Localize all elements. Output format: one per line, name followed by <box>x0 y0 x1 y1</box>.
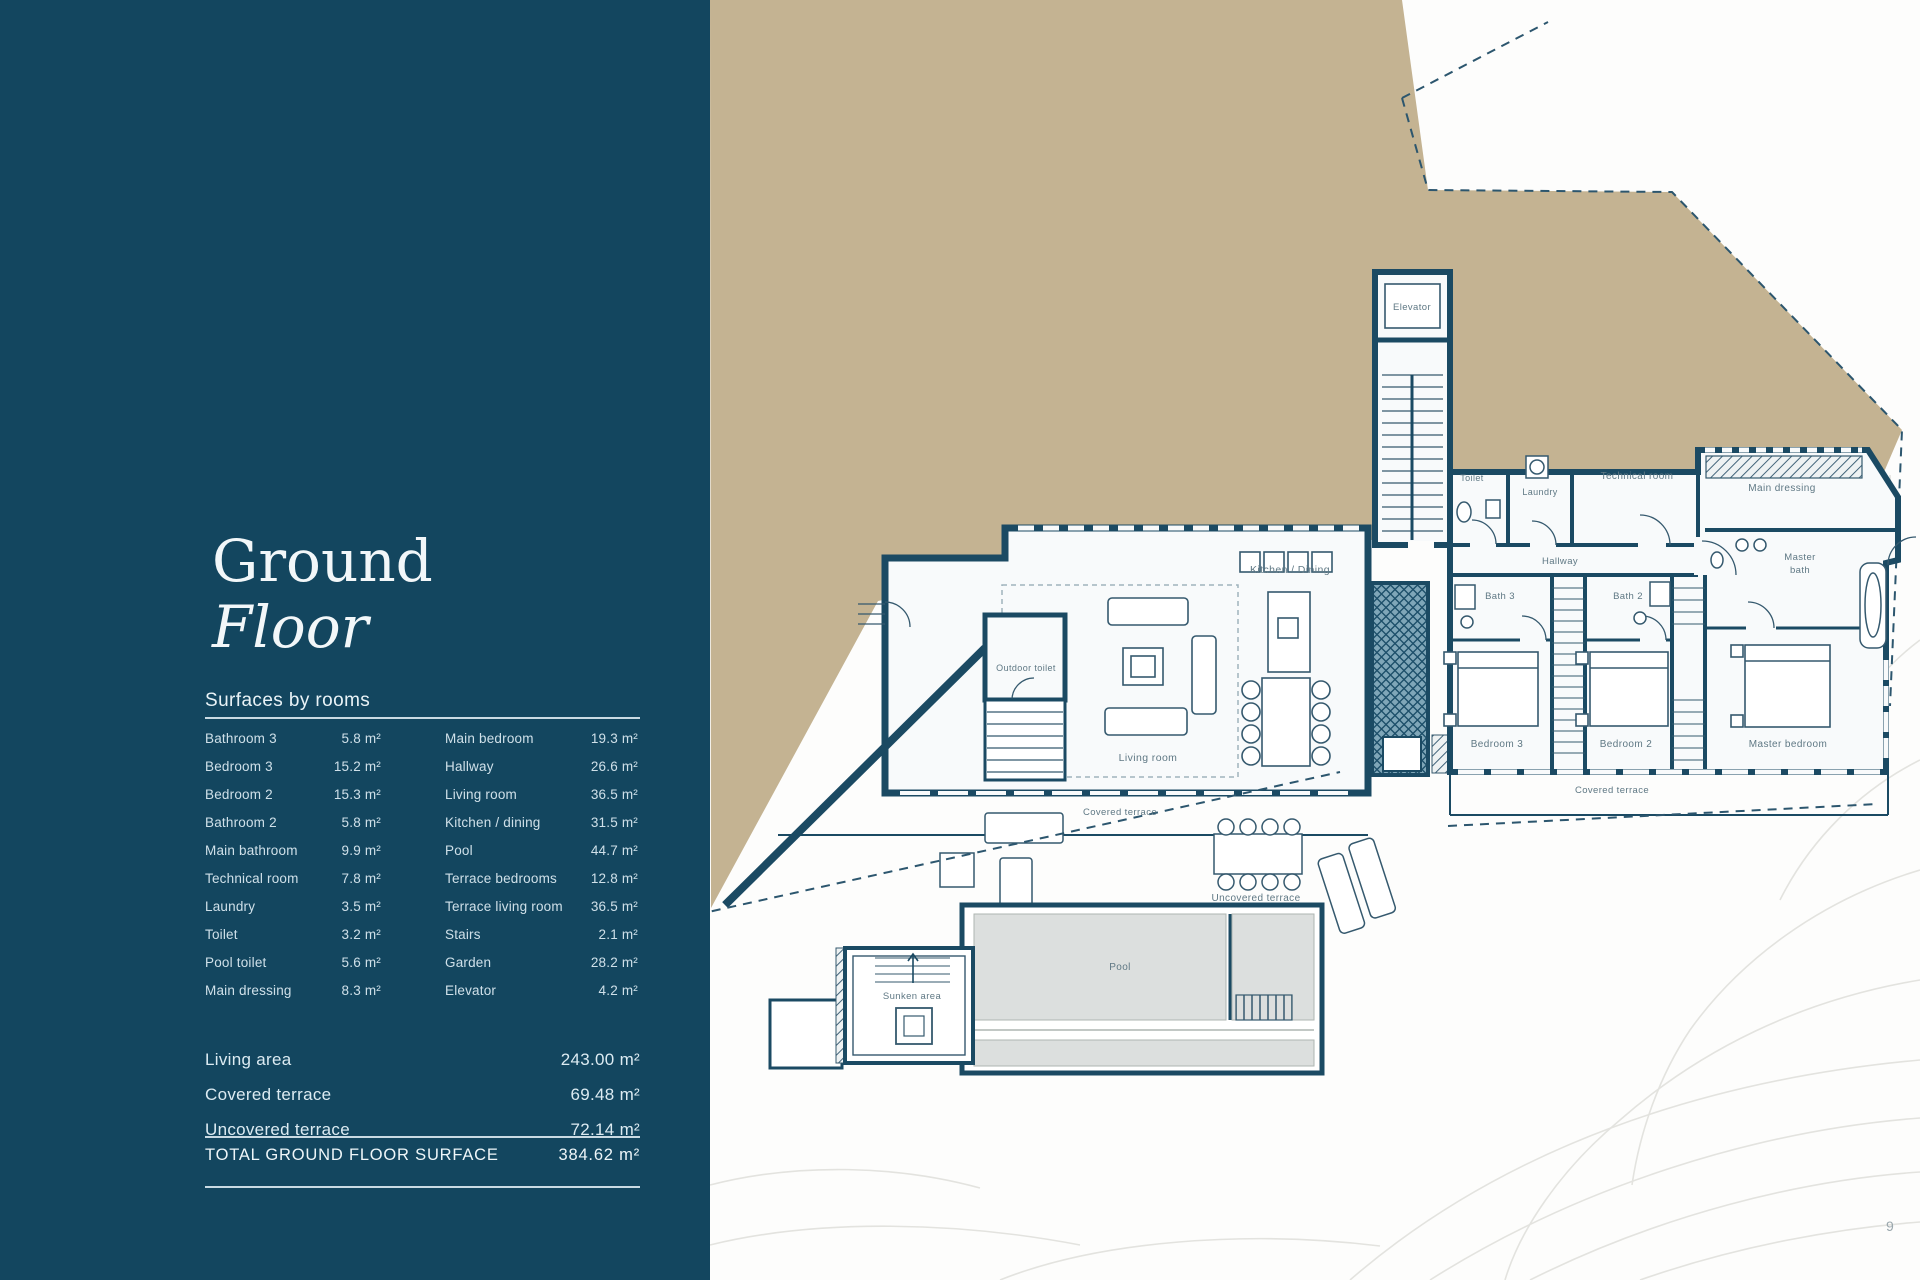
room-name: Pool <box>445 843 473 858</box>
room-area: 44.7 m² <box>591 843 638 858</box>
summary-block: Living area243.00 m² Covered terrace69.4… <box>205 1042 640 1147</box>
room-area: 8.3 m² <box>342 983 381 998</box>
room-area: 5.6 m² <box>342 955 381 970</box>
surfaces-column-right: Main bedroom19.3 m² Hallway26.6 m² Livin… <box>445 724 638 1004</box>
summary-row: Covered terrace69.48 m² <box>205 1077 640 1112</box>
table-row: Terrace bedrooms12.8 m² <box>445 864 638 892</box>
table-row: Bathroom 35.8 m² <box>205 724 381 752</box>
room-area: 26.6 m² <box>591 759 638 774</box>
table-row: Bedroom 315.2 m² <box>205 752 381 780</box>
label-kitchen-dining: Kitchen / Dining <box>1250 564 1330 576</box>
table-row: Stairs2.1 m² <box>445 920 638 948</box>
label-bath-3: Bath 3 <box>1485 591 1515 602</box>
total-rule-top <box>205 1136 640 1138</box>
label-technical-room: Technical room <box>1601 471 1674 482</box>
label-main-dressing: Main dressing <box>1748 483 1815 494</box>
info-panel: Ground Floor Surfaces by rooms Bathroom … <box>0 0 710 1280</box>
label-outdoor-toilet: Outdoor toilet <box>996 663 1056 673</box>
room-name: Bathroom 2 <box>205 815 277 830</box>
label-master-bath-line1: Master <box>1784 552 1815 563</box>
room-name: Stairs <box>445 927 481 942</box>
table-row: Toilet3.2 m² <box>205 920 381 948</box>
room-name: Elevator <box>445 983 496 998</box>
page-title: Ground Floor <box>212 528 433 660</box>
room-name: Bedroom 3 <box>205 759 273 774</box>
table-row: Bathroom 25.8 m² <box>205 808 381 836</box>
label-hallway: Hallway <box>1542 556 1578 567</box>
room-name: Kitchen / dining <box>445 815 541 830</box>
surfaces-table: Bathroom 35.8 m² Bedroom 315.2 m² Bedroo… <box>205 724 638 1004</box>
table-row: Main bathroom9.9 m² <box>205 836 381 864</box>
total-value: 384.62 m² <box>559 1146 641 1165</box>
room-area: 5.8 m² <box>342 731 381 746</box>
room-area: 7.8 m² <box>342 871 381 886</box>
page-number: 9 <box>1886 1218 1894 1234</box>
table-row: Kitchen / dining31.5 m² <box>445 808 638 836</box>
table-row: Technical room7.8 m² <box>205 864 381 892</box>
room-area: 4.2 m² <box>599 983 638 998</box>
table-row: Main dressing8.3 m² <box>205 976 381 1004</box>
room-name: Toilet <box>205 927 238 942</box>
table-row: Bedroom 215.3 m² <box>205 780 381 808</box>
room-name: Main dressing <box>205 983 292 998</box>
elevator-tower <box>1375 272 1450 549</box>
room-name: Main bathroom <box>205 843 298 858</box>
summary-row: Living area243.00 m² <box>205 1042 640 1077</box>
summary-value: 243.00 m² <box>561 1050 640 1070</box>
label-pool: Pool <box>1109 962 1131 973</box>
table-row: Living room36.5 m² <box>445 780 638 808</box>
room-area: 2.1 m² <box>599 927 638 942</box>
table-row: Hallway26.6 m² <box>445 752 638 780</box>
room-area: 19.3 m² <box>591 731 638 746</box>
label-elevator: Elevator <box>1393 302 1431 313</box>
room-name: Terrace bedrooms <box>445 871 557 886</box>
table-heading: Surfaces by rooms <box>205 690 640 712</box>
label-bath-2: Bath 2 <box>1613 591 1643 602</box>
room-name: Bedroom 2 <box>205 787 273 802</box>
room-area: 36.5 m² <box>591 787 638 802</box>
label-laundry: Laundry <box>1522 487 1557 497</box>
pool-block <box>962 905 1322 1073</box>
total-row: TOTAL GROUND FLOOR SURFACE 384.62 m² <box>205 1146 640 1165</box>
room-area: 5.8 m² <box>342 815 381 830</box>
heading-rule <box>205 717 640 719</box>
room-area: 15.2 m² <box>334 759 381 774</box>
room-area: 3.5 m² <box>342 899 381 914</box>
room-area: 12.8 m² <box>591 871 638 886</box>
room-area: 28.2 m² <box>591 955 638 970</box>
page-title-line1: Ground <box>212 528 433 594</box>
total-rule-bottom <box>205 1186 640 1188</box>
summary-row: Uncovered terrace72.14 m² <box>205 1112 640 1147</box>
label-bedroom-3: Bedroom 3 <box>1471 739 1524 750</box>
room-name: Technical room <box>205 871 299 886</box>
label-covered-terrace-left: Covered terrace <box>1083 807 1157 818</box>
label-master-bath-line2: bath <box>1790 565 1810 576</box>
label-living-room: Living room <box>1119 752 1178 764</box>
room-name: Terrace living room <box>445 899 563 914</box>
table-row: Elevator4.2 m² <box>445 976 638 1004</box>
room-area: 31.5 m² <box>591 815 638 830</box>
room-area: 9.9 m² <box>342 843 381 858</box>
room-name: Hallway <box>445 759 494 774</box>
bedroom-wing <box>1444 450 1916 815</box>
label-bedroom-2: Bedroom 2 <box>1600 739 1653 750</box>
table-row: Pool44.7 m² <box>445 836 638 864</box>
table-row: Terrace living room36.5 m² <box>445 892 638 920</box>
label-covered-terrace-right: Covered terrace <box>1575 785 1649 796</box>
table-row: Main bedroom19.3 m² <box>445 724 638 752</box>
label-sunken-area: Sunken area <box>883 991 942 1002</box>
room-name: Laundry <box>205 899 255 914</box>
room-name: Living room <box>445 787 517 802</box>
room-area: 15.3 m² <box>334 787 381 802</box>
room-name: Pool toilet <box>205 955 267 970</box>
room-area: 3.2 m² <box>342 927 381 942</box>
room-area: 36.5 m² <box>591 899 638 914</box>
summary-value: 69.48 m² <box>571 1085 641 1105</box>
summary-name: Living area <box>205 1050 291 1070</box>
total-label: TOTAL GROUND FLOOR SURFACE <box>205 1146 499 1165</box>
table-row: Garden28.2 m² <box>445 948 638 976</box>
label-master-bedroom: Master bedroom <box>1749 739 1827 750</box>
page-title-line2: Floor <box>212 594 433 660</box>
table-row: Pool toilet5.6 m² <box>205 948 381 976</box>
room-name: Main bedroom <box>445 731 534 746</box>
brochure-page: Elevator Kitchen / Dining Living room Co… <box>0 0 1920 1280</box>
surfaces-column-left: Bathroom 35.8 m² Bedroom 315.2 m² Bedroo… <box>205 724 381 1004</box>
summary-name: Covered terrace <box>205 1085 331 1105</box>
room-name: Garden <box>445 955 491 970</box>
label-uncovered-terrace: Uncovered terrace <box>1211 893 1300 904</box>
label-toilet: Toilet <box>1460 473 1484 483</box>
table-row: Laundry3.5 m² <box>205 892 381 920</box>
room-name: Bathroom 3 <box>205 731 277 746</box>
